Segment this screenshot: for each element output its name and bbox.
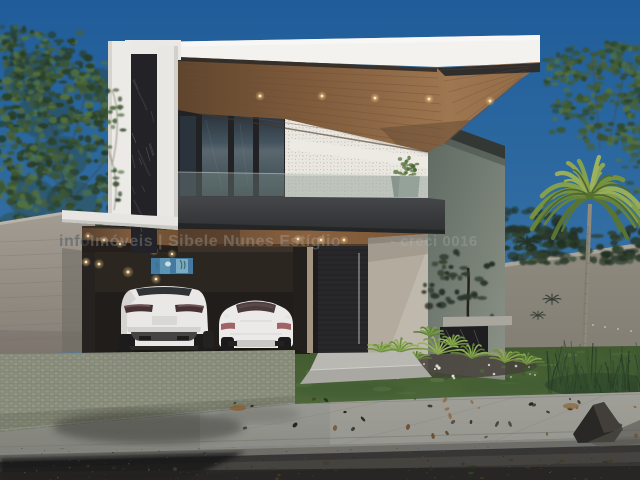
svg-text:Imóveis | Sibele Nunes Estígli: Imóveis | Sibele Nunes Estíglio (90, 233, 341, 250)
svg-text:info: info (59, 233, 90, 250)
svg-text:- creci 0016: - creci 0016 (390, 233, 478, 250)
